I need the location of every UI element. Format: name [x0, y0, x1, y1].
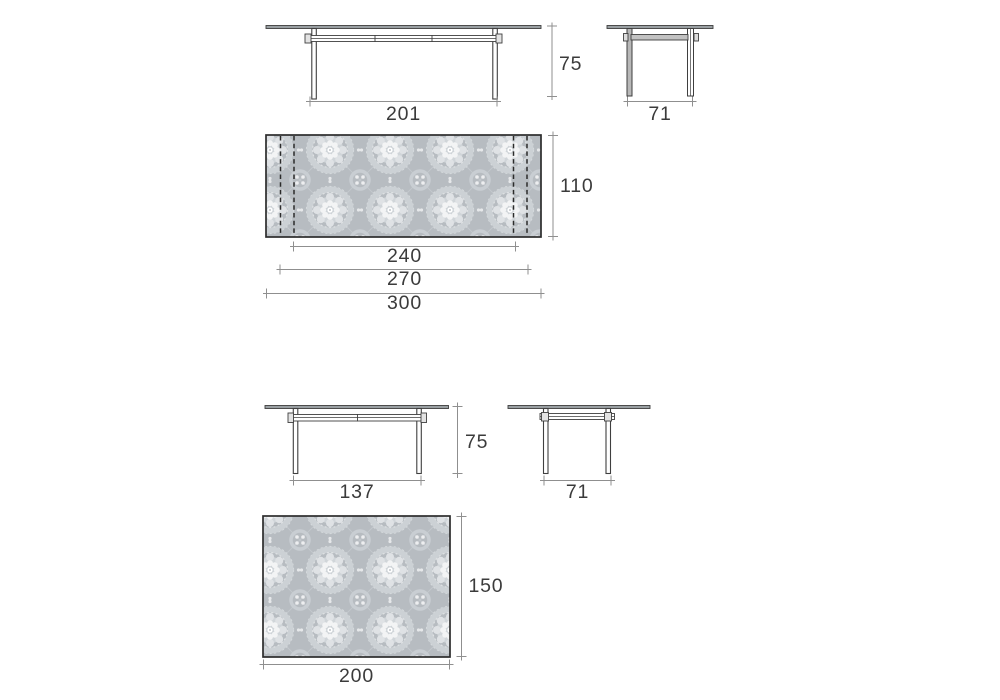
extendable-table-top-view: 110 240 270 300 [263, 132, 594, 315]
fixed-table-side-view: 71 [508, 406, 650, 504]
dimension-drawing-svg: 201 75 71 [0, 0, 1000, 700]
stretcher-rail [288, 413, 427, 423]
leg-connector [605, 413, 612, 422]
tabletop [607, 26, 713, 29]
tabletop [508, 406, 650, 409]
leg-connector [542, 413, 549, 422]
leg-connector [496, 34, 502, 43]
leg-connector [694, 34, 699, 42]
dimension-label: 201 [386, 103, 421, 125]
depth-dimension: 71 [540, 476, 615, 504]
dimension-label: 240 [387, 245, 422, 267]
stretcher-rail [305, 34, 502, 43]
depth-dimension: 150 [457, 513, 504, 661]
stretcher-rail [540, 413, 615, 422]
width-270-dimension: 270 [277, 265, 532, 291]
dimension-label: 300 [387, 292, 422, 314]
height-dimension: 75 [547, 23, 582, 101]
dimension-label: 75 [559, 53, 582, 75]
tabletop-pattern [266, 135, 541, 237]
tabletop [266, 26, 541, 29]
dimension-label: 150 [469, 575, 504, 597]
dimension-label: 137 [340, 481, 375, 503]
stretcher-rail [624, 34, 699, 42]
leg-connector [305, 34, 311, 43]
dimension-label: 75 [465, 431, 488, 453]
leg-connector [624, 34, 629, 42]
width-240-dimension: 240 [290, 242, 519, 268]
dimension-label: 71 [566, 481, 589, 503]
depth-dimension: 71 [624, 97, 697, 126]
width-dimension: 137 [290, 476, 426, 504]
leg-connector [288, 413, 294, 423]
dimension-label: 110 [560, 175, 594, 197]
height-dimension: 75 [453, 403, 489, 479]
width-dimension: 201 [306, 97, 501, 126]
fixed-table-top-view: 150 200 [260, 513, 504, 688]
leg-connector [421, 413, 427, 423]
dimension-label: 71 [648, 103, 671, 125]
tabletop-pattern [263, 516, 450, 657]
dimension-label: 200 [339, 665, 374, 687]
width-dimension: 200 [260, 660, 454, 688]
fixed-table-front-view: 137 75 [265, 403, 488, 504]
width-300-dimension: 300 [263, 289, 545, 315]
extendable-table-side-view: 71 [607, 26, 713, 126]
depth-dimension: 110 [548, 132, 594, 241]
extendable-table-front-view: 201 75 [266, 23, 582, 126]
spec-sheet: 201 75 71 [0, 0, 1000, 700]
dimension-label: 270 [387, 268, 422, 290]
